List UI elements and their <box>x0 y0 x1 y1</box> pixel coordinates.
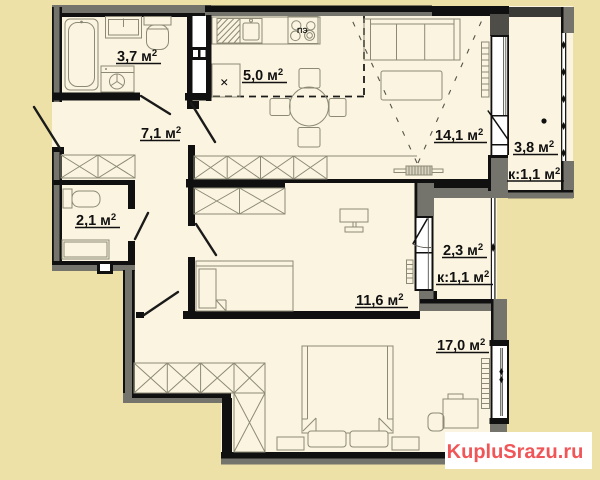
svg-text:11,6 м2: 11,6 м2 <box>356 292 403 309</box>
svg-text:14,1 м2: 14,1 м2 <box>435 127 483 144</box>
svg-text:2,3 м2: 2,3 м2 <box>443 242 483 259</box>
svg-text:2,1 м2: 2,1 м2 <box>76 212 116 229</box>
svg-text:к:1,1 м2: к:1,1 м2 <box>437 269 489 286</box>
svg-text:ПЭ: ПЭ <box>297 26 308 35</box>
svg-text:KupluSrazu.ru: KupluSrazu.ru <box>447 441 584 463</box>
svg-text:3,8 м2: 3,8 м2 <box>514 139 554 156</box>
svg-text:3,7 м2: 3,7 м2 <box>117 48 157 65</box>
svg-text:5,0 м2: 5,0 м2 <box>243 67 283 84</box>
svg-text:17,0 м2: 17,0 м2 <box>437 337 485 354</box>
svg-text:7,1 м2: 7,1 м2 <box>141 125 181 142</box>
